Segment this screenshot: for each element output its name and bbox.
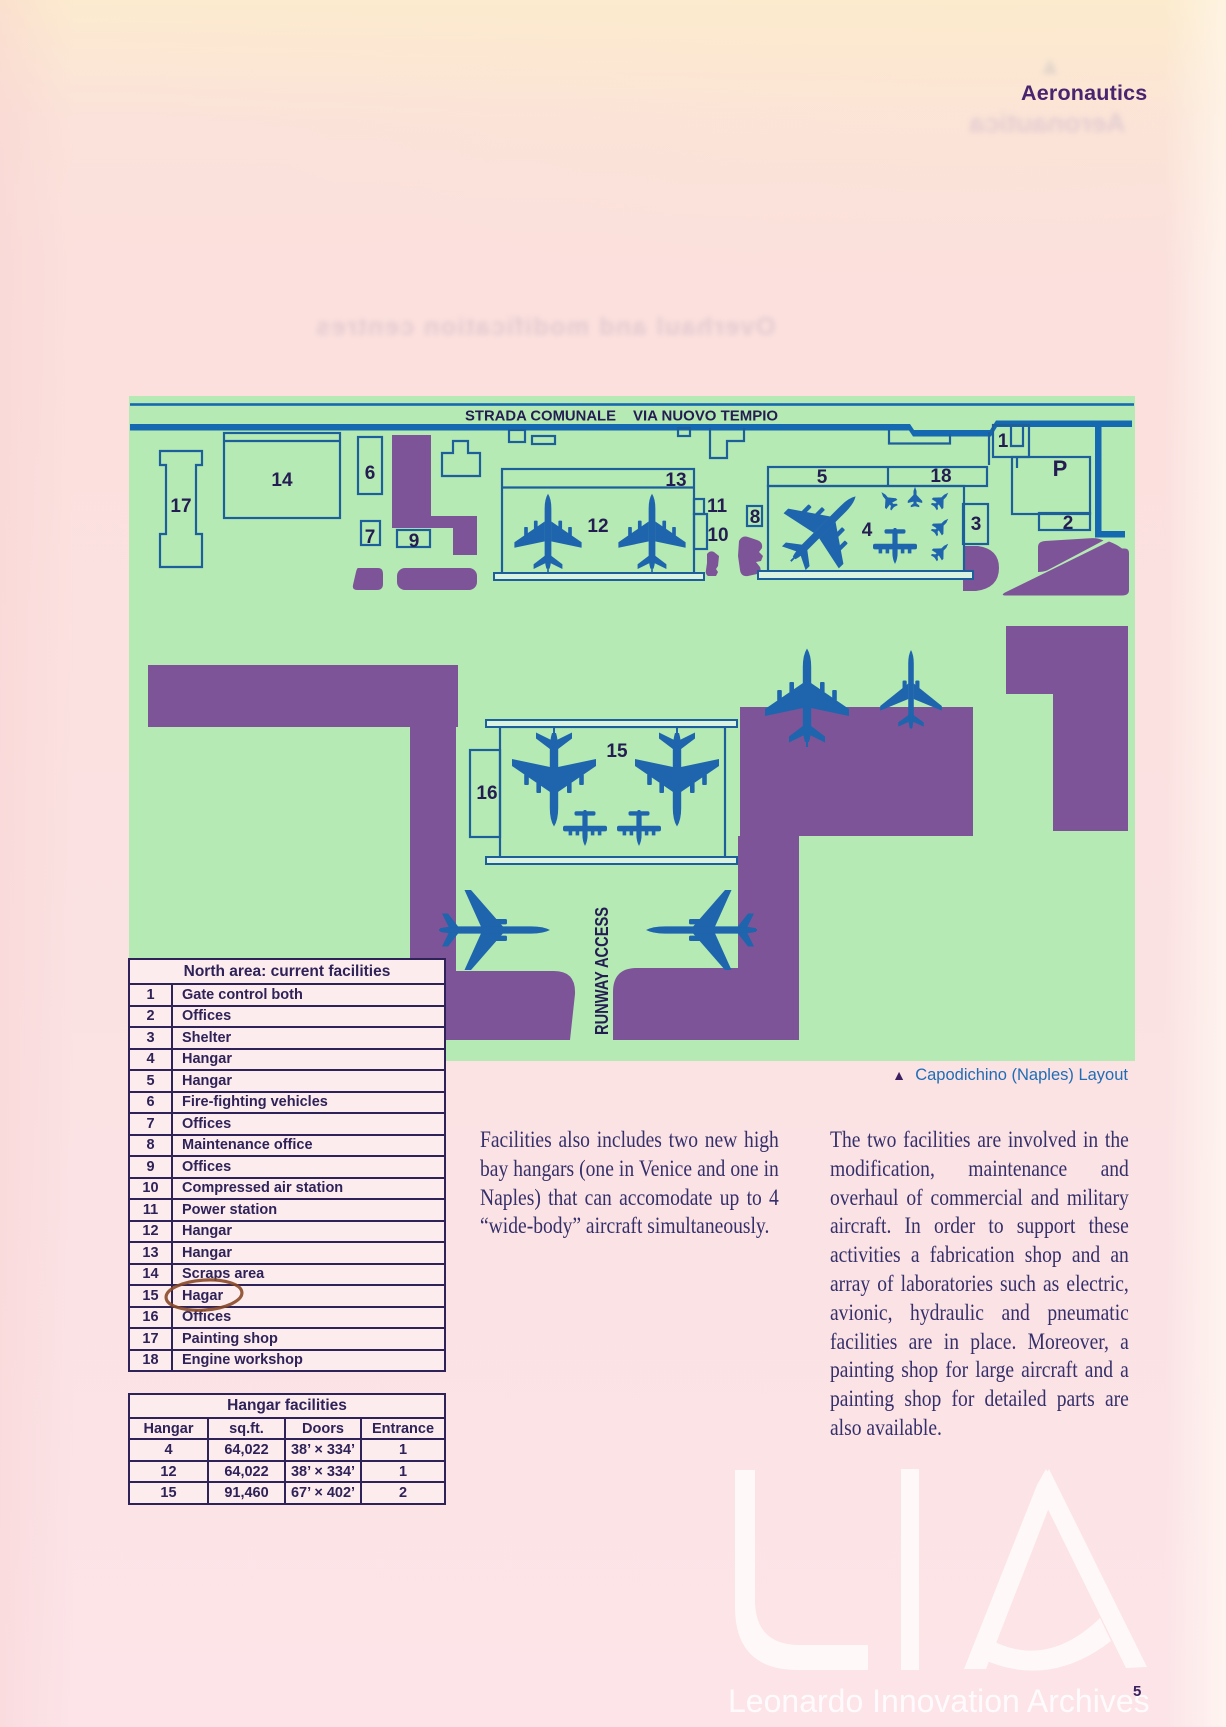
svg-text:12: 12 bbox=[587, 516, 608, 537]
svg-text:18: 18 bbox=[930, 466, 951, 487]
svg-text:VIA NUOVO TEMPIO: VIA NUOVO TEMPIO bbox=[633, 408, 778, 425]
svg-text:STRADA COMUNALE: STRADA COMUNALE bbox=[465, 408, 616, 425]
svg-text:13: 13 bbox=[665, 470, 686, 491]
svg-text:7: 7 bbox=[365, 527, 376, 548]
svg-text:14: 14 bbox=[271, 470, 293, 491]
svg-text:17: 17 bbox=[170, 496, 191, 517]
svg-text:4: 4 bbox=[862, 520, 873, 541]
svg-text:15: 15 bbox=[606, 741, 628, 762]
svg-text:2: 2 bbox=[1063, 513, 1074, 534]
svg-text:RUNWAY ACCESS: RUNWAY ACCESS bbox=[592, 907, 612, 1035]
svg-text:3: 3 bbox=[971, 514, 982, 535]
svg-text:Leonardo Innovation Archives: Leonardo Innovation Archives bbox=[728, 1683, 1150, 1719]
svg-text:6: 6 bbox=[365, 463, 376, 484]
svg-text:5: 5 bbox=[817, 467, 828, 488]
svg-text:9: 9 bbox=[409, 531, 420, 552]
svg-text:P: P bbox=[1053, 456, 1068, 481]
svg-text:1: 1 bbox=[998, 431, 1009, 452]
svg-text:11: 11 bbox=[707, 496, 728, 517]
svg-text:8: 8 bbox=[750, 507, 761, 528]
svg-text:16: 16 bbox=[476, 783, 497, 804]
svg-text:10: 10 bbox=[707, 525, 728, 546]
